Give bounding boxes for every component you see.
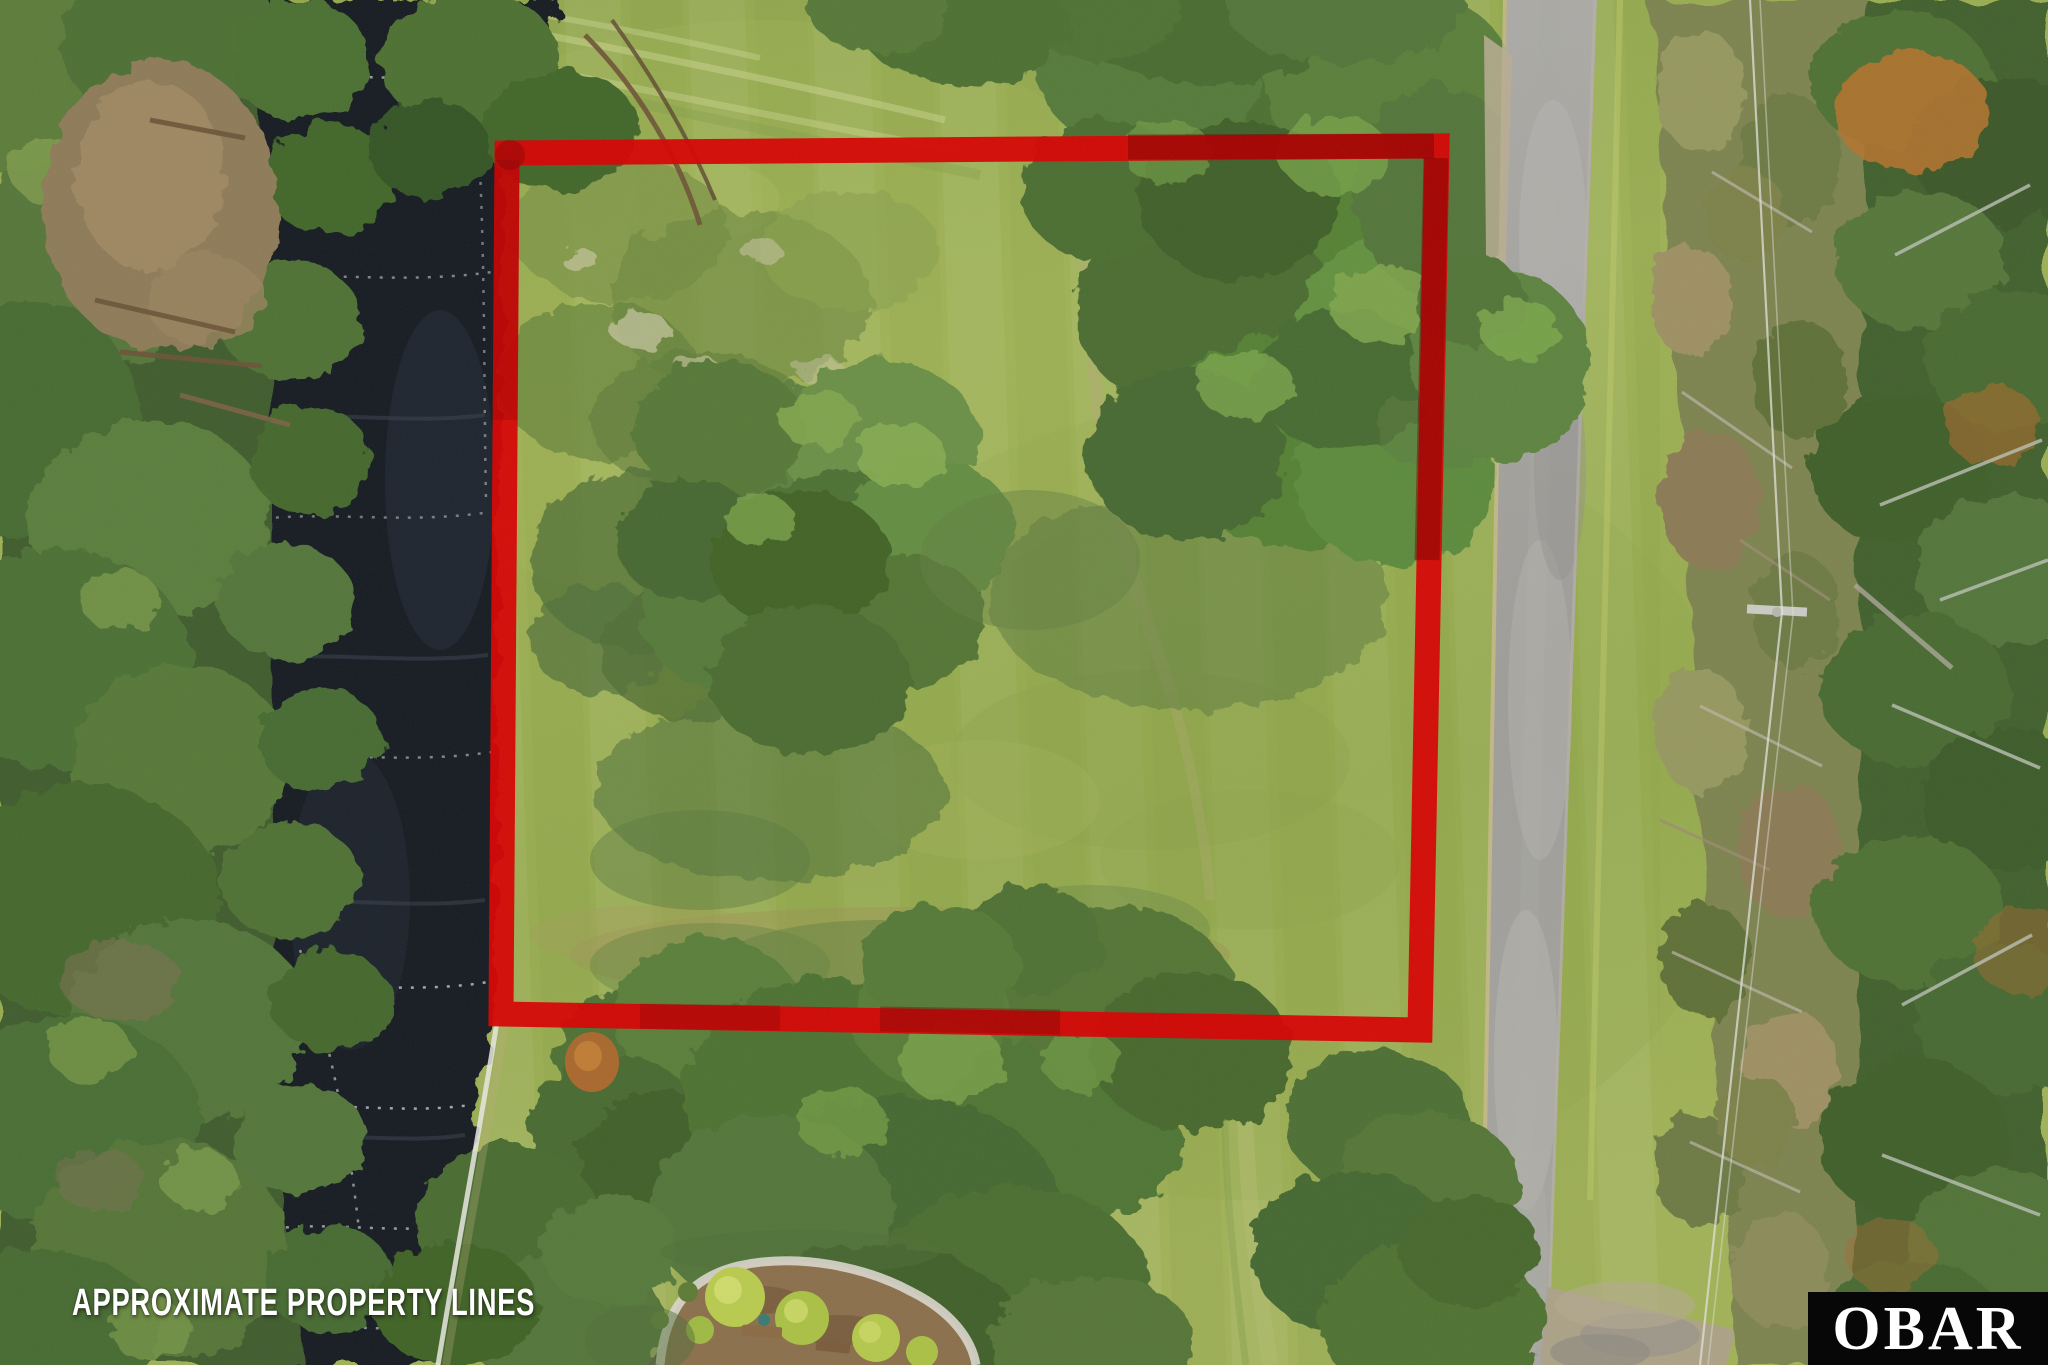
- aerial-scene: [0, 0, 2048, 1365]
- aerial-property-photo: APPROXIMATE PROPERTY LINES OBAR: [0, 0, 2048, 1365]
- brand-logo: OBAR: [1808, 1292, 2048, 1365]
- watermark-text: APPROXIMATE PROPERTY LINES: [72, 1282, 535, 1325]
- photo-grain: [0, 0, 2048, 1365]
- brand-logo-text: OBAR: [1832, 1298, 2023, 1360]
